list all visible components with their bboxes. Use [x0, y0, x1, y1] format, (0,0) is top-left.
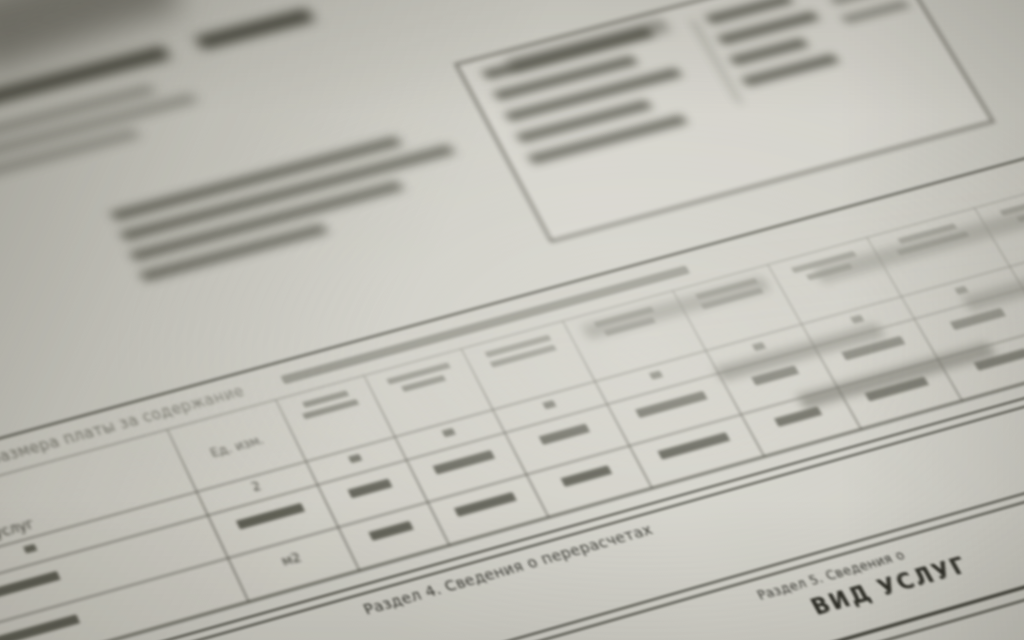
paper-sheet: размера платы за содержание Виды услуг Е…	[0, 0, 1024, 640]
blurred-text-line	[196, 8, 314, 50]
blurred-paragraph-block	[111, 119, 505, 293]
blurred-text-line	[121, 145, 454, 241]
blurred-text-line	[842, 1, 909, 24]
blurred-text-line	[528, 115, 687, 164]
photo-of-utility-bill: размера платы за содержание Виды услуг Е…	[0, 0, 1024, 640]
blurred-text-line	[111, 137, 401, 221]
blurred-text-column	[482, 25, 718, 177]
blurred-text-line	[482, 28, 653, 80]
blurred-text-line	[730, 38, 808, 65]
blurred-text-line	[0, 130, 139, 180]
blurred-text-line	[831, 0, 889, 4]
perspective-wrapper: размера платы за содержание Виды услуг Е…	[0, 0, 1024, 640]
blurred-text-column	[691, 0, 855, 104]
blurred-text-column	[831, 0, 917, 36]
